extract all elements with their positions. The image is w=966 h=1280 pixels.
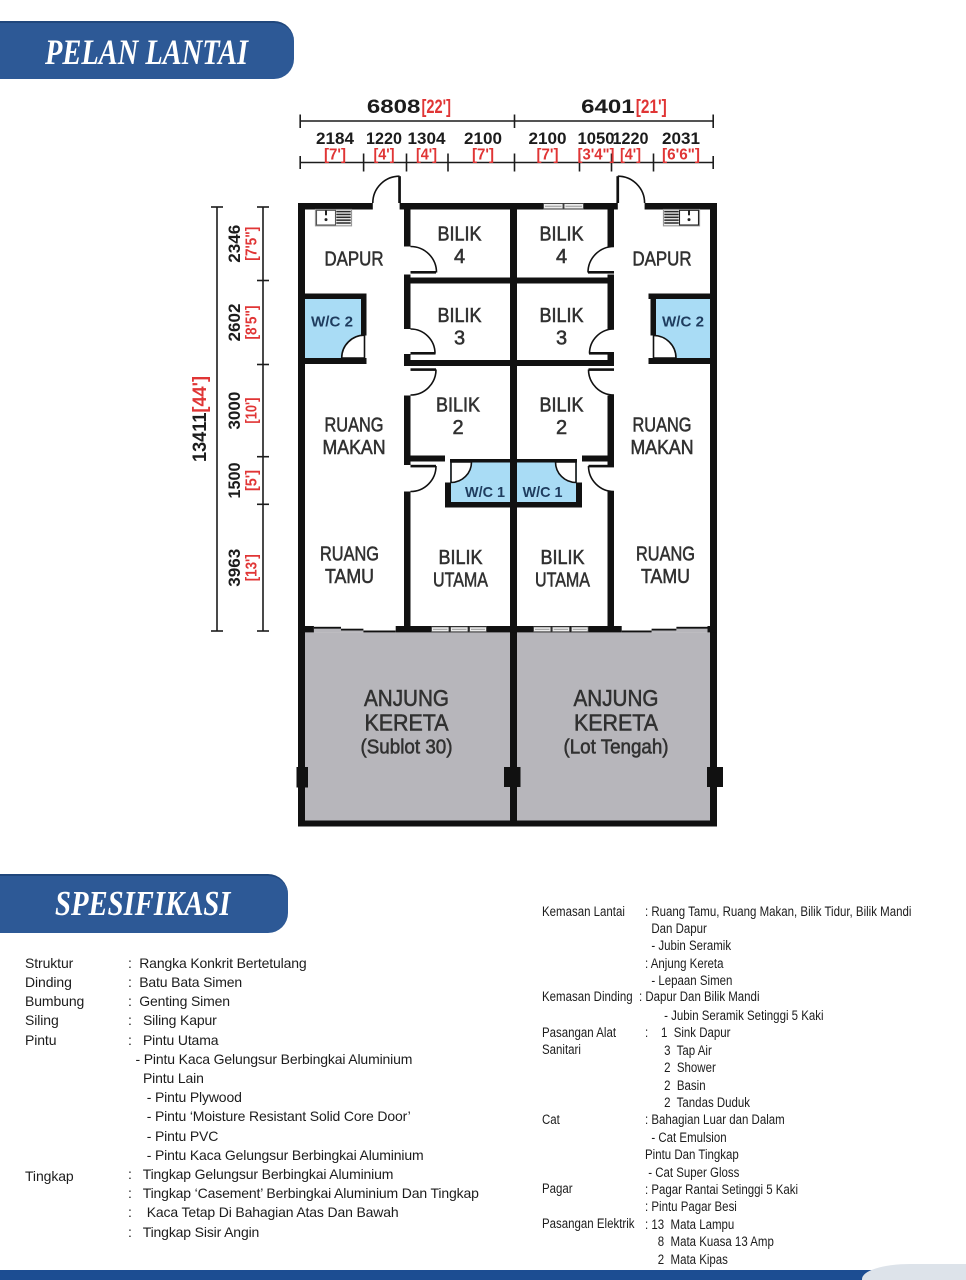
svg-text:3963: 3963 <box>226 549 244 587</box>
svg-text:BILIK: BILIK <box>540 305 585 327</box>
svg-text:(Lot Tengah): (Lot Tengah) <box>564 736 669 759</box>
svg-text:1220: 1220 <box>613 130 649 148</box>
svg-text:6808: 6808 <box>367 96 421 118</box>
svg-text:RUANG: RUANG <box>325 415 384 437</box>
svg-text:2602: 2602 <box>226 304 244 342</box>
svg-text:[5']: [5'] <box>244 470 261 491</box>
svg-text:2346: 2346 <box>226 225 244 263</box>
svg-text:TAMU: TAMU <box>641 566 690 588</box>
svg-text:2100: 2100 <box>464 130 502 148</box>
svg-text:[10']: [10'] <box>244 398 261 424</box>
svg-text:[21']: [21'] <box>636 96 667 118</box>
svg-text:ANJUNG: ANJUNG <box>574 685 659 711</box>
svg-text:1304: 1304 <box>408 130 447 148</box>
svg-text:W/C 1: W/C 1 <box>523 484 563 501</box>
svg-text:[13']: [13'] <box>244 554 261 581</box>
svg-text:3: 3 <box>556 328 567 350</box>
svg-text:3000: 3000 <box>226 392 244 430</box>
svg-text:2184: 2184 <box>316 130 355 148</box>
svg-text:KERETA: KERETA <box>574 710 659 736</box>
svg-text:13411[44']: 13411[44'] <box>190 376 211 462</box>
svg-text:W/C 2: W/C 2 <box>311 314 353 331</box>
svg-text:[7']: [7'] <box>472 147 494 164</box>
svg-text:BILIK: BILIK <box>439 547 484 569</box>
svg-text:[6'6"]: [6'6"] <box>662 147 700 164</box>
svg-text:W/C 1: W/C 1 <box>465 484 505 501</box>
svg-text:3: 3 <box>454 328 465 350</box>
svg-text:2: 2 <box>556 417 567 439</box>
svg-text:UTAMA: UTAMA <box>535 570 591 592</box>
svg-text:[8'5"]: [8'5"] <box>244 306 261 340</box>
svg-text:UTAMA: UTAMA <box>433 570 489 592</box>
svg-text:[7'5"]: [7'5"] <box>244 227 261 261</box>
svg-text:[3'4"]: [3'4"] <box>578 147 615 164</box>
svg-text:W/C 2: W/C 2 <box>662 314 704 331</box>
svg-text:BILIK: BILIK <box>541 547 586 569</box>
svg-text:1050: 1050 <box>578 130 615 148</box>
svg-text:6401: 6401 <box>581 96 635 118</box>
svg-text:4: 4 <box>556 246 567 268</box>
svg-text:[4']: [4'] <box>374 147 395 164</box>
svg-text:2: 2 <box>452 417 463 439</box>
svg-text:(Sublot 30): (Sublot 30) <box>361 736 453 759</box>
svg-text:BILIK: BILIK <box>438 305 483 327</box>
svg-text:2100: 2100 <box>529 130 567 148</box>
svg-text:TAMU: TAMU <box>325 566 374 588</box>
svg-text:RUANG: RUANG <box>633 415 692 437</box>
svg-text:DAPUR: DAPUR <box>325 249 384 271</box>
svg-text:[7']: [7'] <box>537 147 559 164</box>
svg-text:[7']: [7'] <box>324 147 346 164</box>
svg-text:DAPUR: DAPUR <box>633 249 692 271</box>
svg-text:[4']: [4'] <box>416 147 437 164</box>
svg-text:2031: 2031 <box>662 130 700 148</box>
svg-text:BILIK: BILIK <box>540 395 585 417</box>
svg-text:1220: 1220 <box>366 130 402 148</box>
svg-text:BILIK: BILIK <box>540 224 585 246</box>
svg-text:[22']: [22'] <box>422 96 452 118</box>
svg-text:MAKAN: MAKAN <box>631 437 694 459</box>
svg-text:4: 4 <box>454 246 465 268</box>
svg-text:1500: 1500 <box>226 463 244 499</box>
svg-text:[4']: [4'] <box>620 147 641 164</box>
svg-text:BILIK: BILIK <box>436 395 481 417</box>
svg-text:RUANG: RUANG <box>636 544 695 566</box>
svg-text:RUANG: RUANG <box>320 544 379 566</box>
svg-text:MAKAN: MAKAN <box>323 437 386 459</box>
svg-text:ANJUNG: ANJUNG <box>364 685 449 711</box>
svg-text:KERETA: KERETA <box>365 710 450 736</box>
svg-text:BILIK: BILIK <box>438 224 483 246</box>
